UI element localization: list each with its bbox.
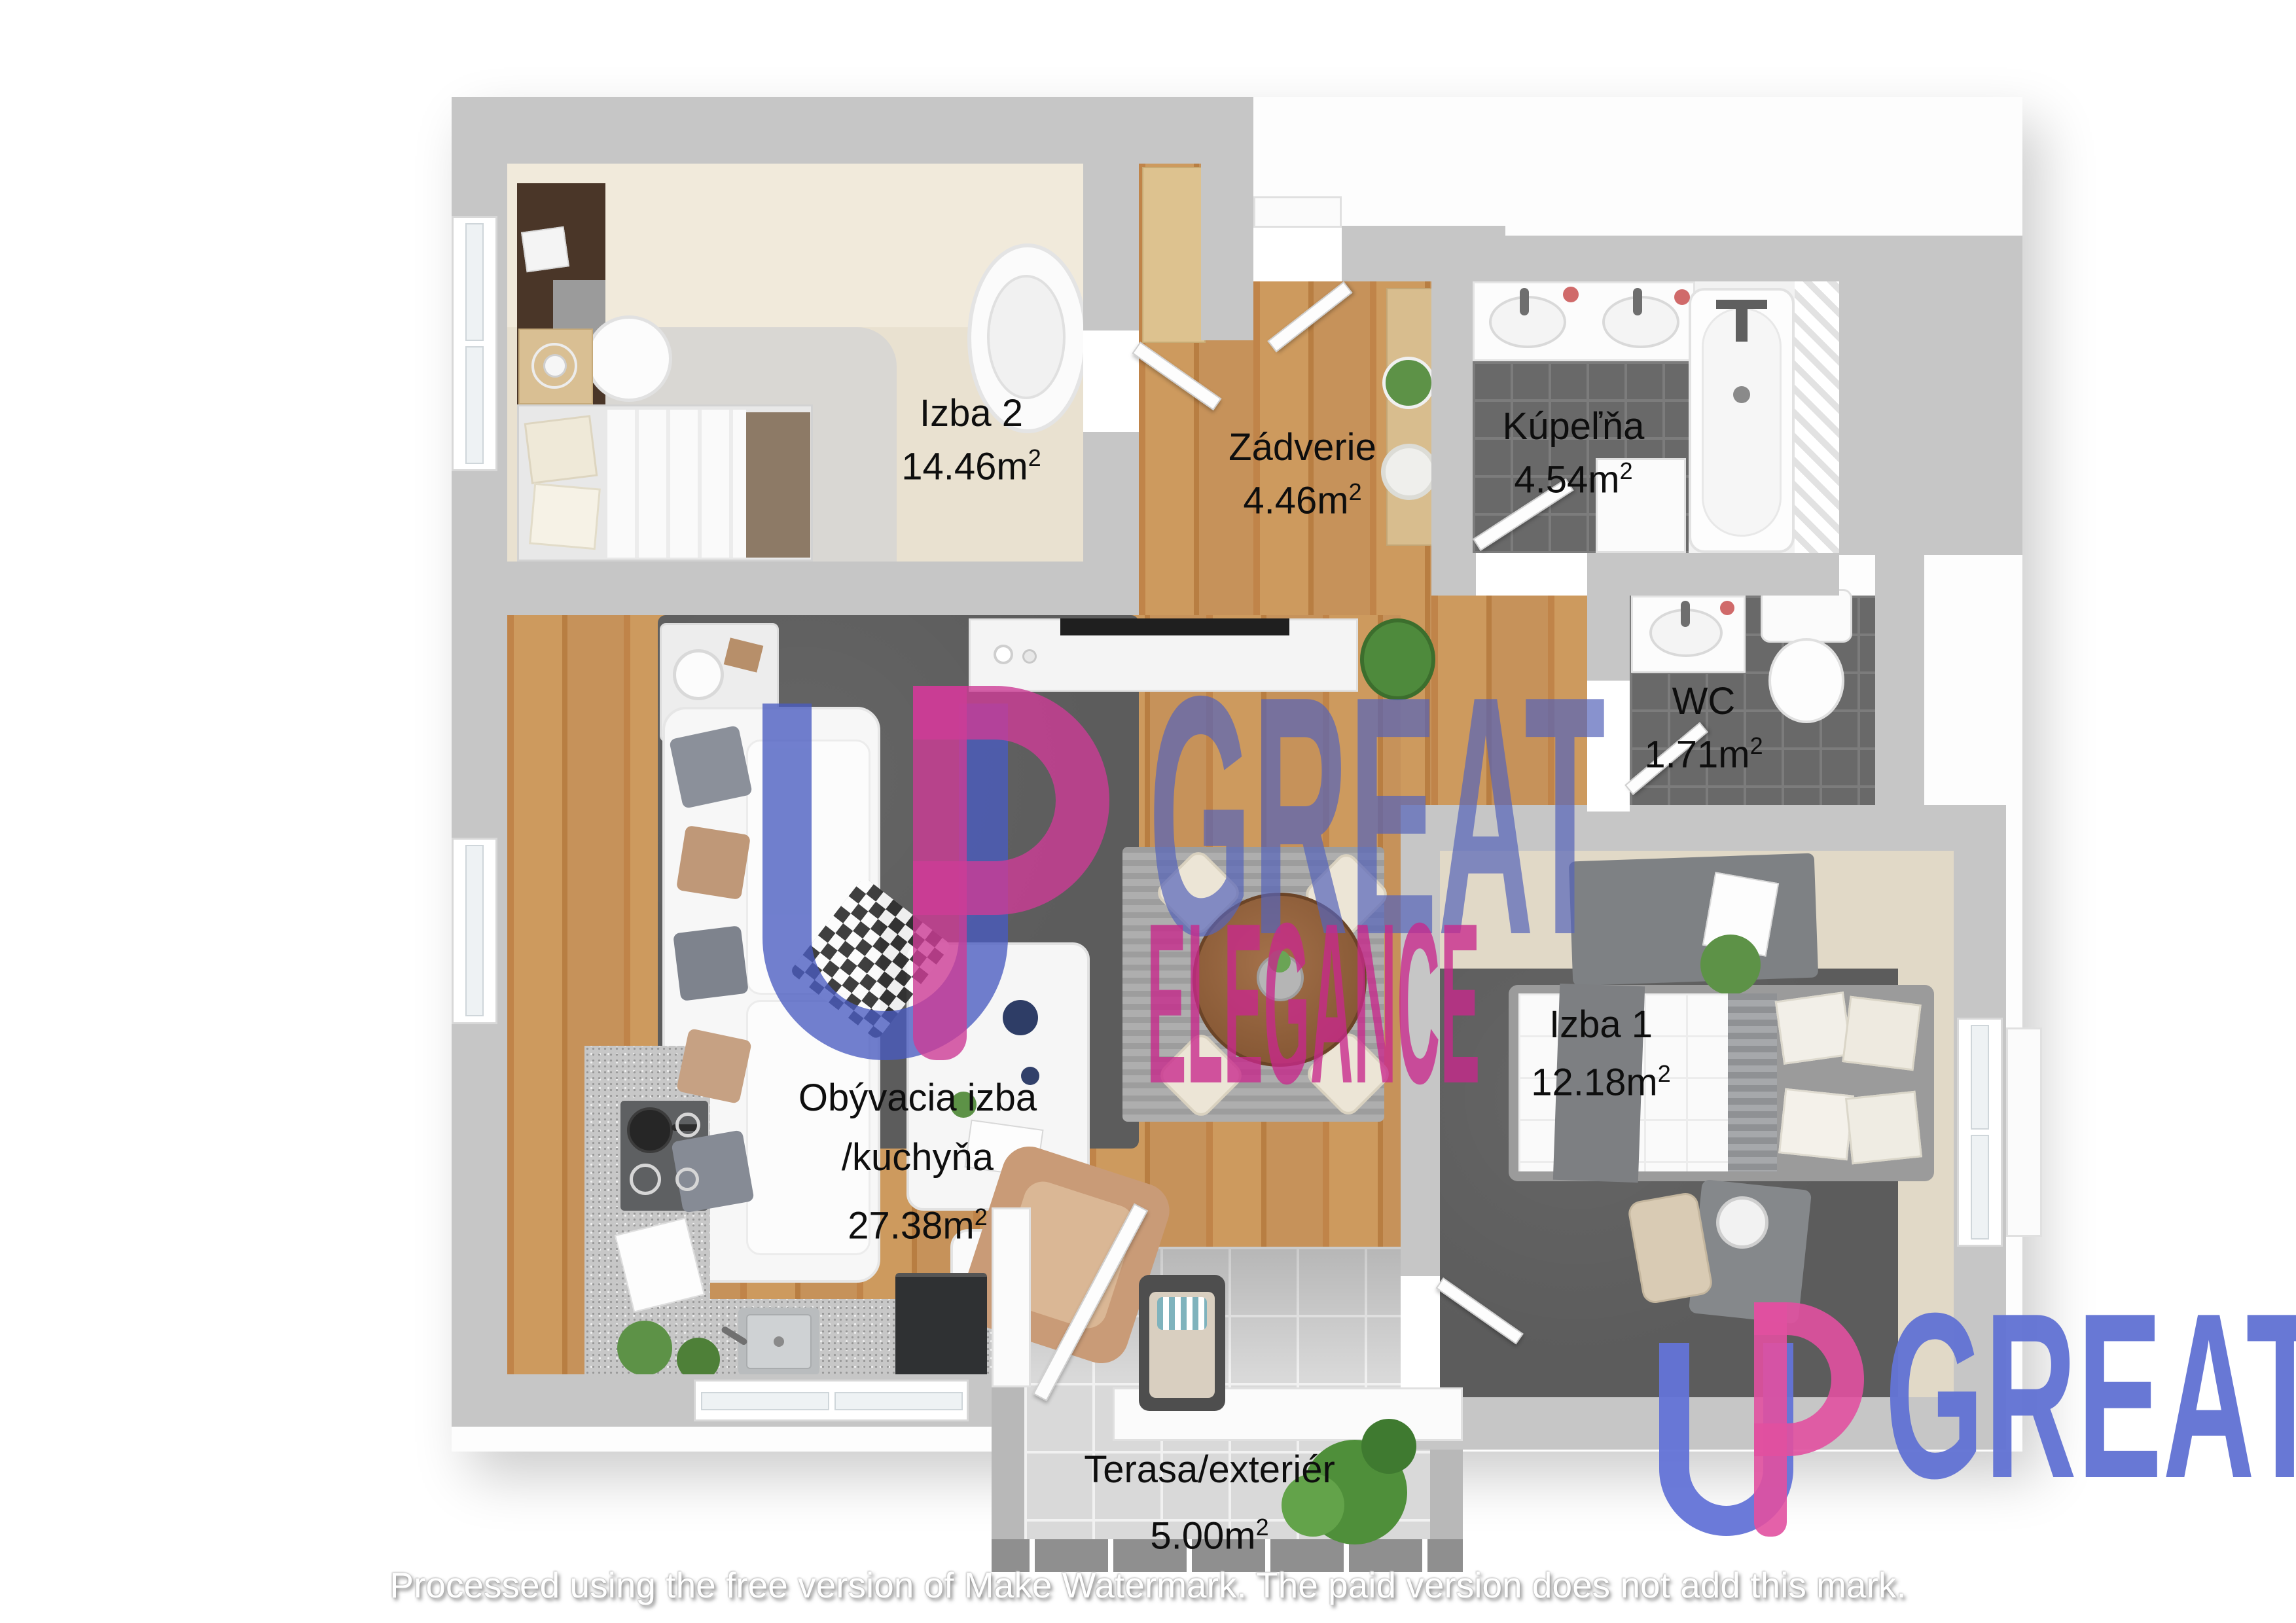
bathtub-drain (1733, 386, 1750, 403)
dishwasher (895, 1273, 987, 1382)
izba2-desk-books (521, 226, 569, 273)
izba2-armchair-cushion (987, 275, 1066, 399)
bath-flower-left (1563, 287, 1579, 302)
sofa-pillow-gray2 (673, 925, 749, 1001)
izba1-pillow1 (1775, 991, 1853, 1065)
side-table-lamp (673, 649, 724, 700)
watermark-great-corner: GREAT (1885, 1284, 2296, 1508)
bath-faucet-left (1520, 288, 1529, 315)
floor-plan: Izba 2 14.46m2 Zádverie 4.46m2 Kúpeľňa 4… (0, 0, 2296, 1623)
up-logo-monogram-center (762, 681, 1155, 1073)
bath-faucet-right (1633, 288, 1642, 315)
izba2-bed-duvet (607, 410, 746, 558)
kitchen-window-bottom (694, 1380, 969, 1421)
room-label-izba1: Izba 1 12.18m2 (1531, 1000, 1670, 1107)
izba2-lamp-bulb (543, 354, 567, 378)
sofa-pillow-brown2 (676, 1028, 752, 1104)
tv-deco1 (994, 645, 1013, 664)
bathtub-faucet-bar (1716, 300, 1767, 309)
wall-hall-bath-divider (1431, 226, 1473, 596)
wall-bath-top (1473, 236, 1839, 281)
hall-console (1386, 288, 1434, 546)
wc-toilet-bowl (1768, 638, 1844, 723)
kitchen-sink-drain (774, 1336, 784, 1347)
wc-faucet (1681, 601, 1690, 627)
opening-izba2-door (1083, 330, 1139, 432)
wall-entry-corner (1201, 164, 1253, 340)
wall-izba2-bottom (452, 562, 1139, 615)
opening-izba1-door (1401, 1276, 1440, 1387)
tv-deco2 (1022, 649, 1037, 664)
izba1-window-sill (2006, 1027, 2042, 1237)
stove-burner3 (675, 1168, 699, 1191)
hall-plant-icon (1382, 357, 1435, 409)
terrace-plant-leaf2 (1361, 1419, 1416, 1474)
sofa-pillow-gray1 (669, 725, 753, 809)
wall-bath-right-block (1839, 236, 2022, 555)
wc-toilet-cistern (1761, 589, 1852, 643)
bath-flower-right (1674, 289, 1690, 305)
izba1-dresser-plant (1700, 935, 1761, 995)
hall-basket-icon (1381, 444, 1437, 500)
footer-watermark-text: Processed using the free version of Make… (389, 1564, 1906, 1606)
izba1-window (1957, 1018, 2003, 1247)
izba1-pillow4 (1845, 1091, 1922, 1165)
izba1-pillow2 (1842, 996, 1922, 1071)
stove-pot (627, 1107, 673, 1153)
room-label-kupelna: Kúpeľňa 4.54m2 (1503, 404, 1645, 502)
wc-flower (1720, 601, 1734, 615)
up-logo-p-bowl-icon (913, 686, 1109, 915)
izba1-desk-mirror (1716, 1196, 1768, 1249)
room-label-wc: WC 1.71m2 (1644, 679, 1763, 777)
izba2-window (452, 216, 497, 471)
herb-plant1 (617, 1321, 672, 1376)
hall-wardrobe (1142, 167, 1206, 343)
izba1-dresser (1569, 853, 1818, 986)
watermark-elegance-center: ELEGANCE (1147, 895, 1480, 1113)
up-logo-p-bowl-icon (1754, 1302, 1864, 1456)
up-logo-monogram-corner (1659, 1302, 1875, 1544)
opening-bath-door (1476, 553, 1587, 596)
izba1-pillow3 (1778, 1088, 1854, 1161)
entry-threshold (1253, 196, 1342, 228)
opening-entry (1253, 226, 1342, 281)
room-label-zadverie: Zádverie 4.46m2 (1229, 425, 1376, 523)
bathtub-surround (1795, 281, 1839, 553)
stove-burner1 (675, 1113, 700, 1137)
izba2-bed-blanket (746, 412, 810, 558)
izba2-bed-pillow1 (524, 415, 598, 484)
room-label-terasa: Terasa/exteriér 5.00m2 (1084, 1441, 1335, 1565)
room-label-obyvacia: Obývacia izba /kuchyňa 27.38m2 (798, 1068, 1037, 1255)
room-label-izba2: Izba 2 14.46m2 (901, 391, 1041, 489)
izba2-desk-chair (586, 315, 672, 402)
terrace-pillow-striped (1157, 1297, 1207, 1330)
izba1-bed-base-stripes (1728, 993, 1777, 1171)
sofa-pillow-brown1 (676, 825, 751, 900)
living-window-left (452, 838, 497, 1024)
bathtub-basin (1702, 308, 1782, 537)
izba2-bed-pillow2 (529, 483, 601, 550)
stove-burner2 (630, 1164, 661, 1195)
